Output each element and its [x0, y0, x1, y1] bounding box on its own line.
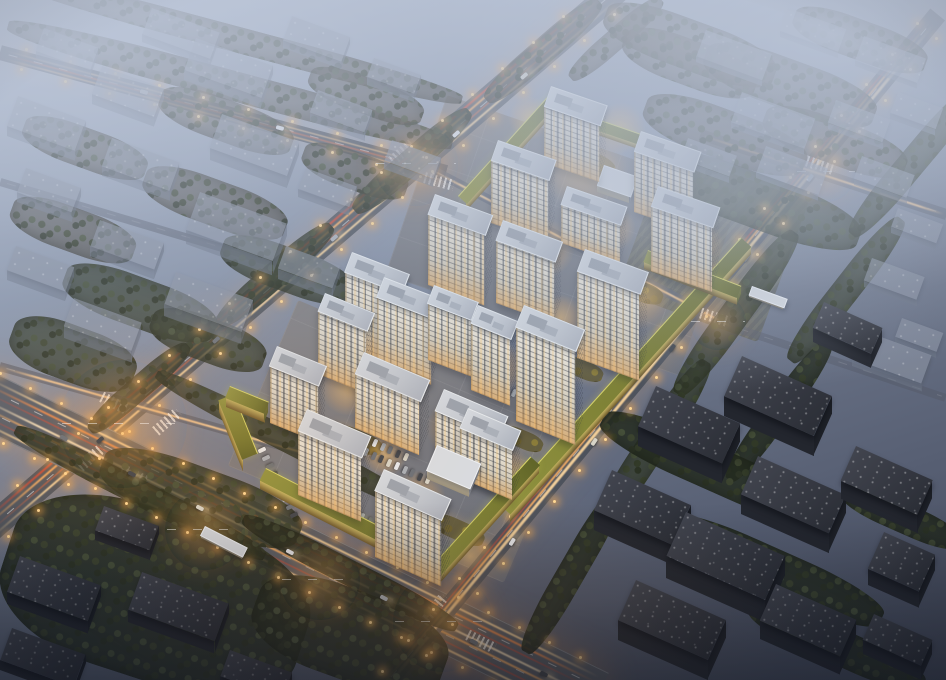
streetlight-glow: [562, 15, 565, 18]
tree-cluster: [241, 559, 460, 680]
vehicle: [742, 254, 750, 262]
bg-roof: [17, 168, 80, 212]
courtyard-light-glow: [388, 298, 448, 358]
dark-roof: [813, 302, 883, 354]
tree-cluster: [92, 434, 310, 562]
tower-facade: [428, 213, 484, 306]
courtyard-light-glow: [470, 340, 526, 396]
streetlight-glow: [462, 144, 465, 147]
streetlight-glow: [308, 591, 311, 594]
tree-cluster: [757, 96, 913, 189]
slab-facade: [375, 489, 441, 586]
courtyard-light-glow: [508, 96, 552, 140]
tree-cluster: [151, 363, 429, 521]
streetlight-glow: [228, 302, 231, 305]
bg-facade: [142, 34, 210, 67]
bg-facade: [310, 113, 365, 141]
dark-side-face: [840, 620, 856, 673]
parked-car: [277, 487, 286, 494]
streetlight-glow: [108, 92, 111, 95]
podium-roof: [225, 386, 269, 414]
dark-facade: [863, 640, 921, 680]
streetlight-glow: [198, 328, 201, 331]
tree-cluster: [215, 225, 362, 314]
tree-cluster: [478, 0, 608, 110]
dark-facade: [841, 481, 918, 533]
tower-facade: [516, 325, 575, 445]
streetlight-glow: [884, 99, 887, 102]
parked-car: [373, 533, 380, 542]
tower-side-face: [470, 302, 476, 372]
parked-car: [510, 389, 517, 398]
parked-car: [405, 534, 412, 543]
dark-roof: [220, 650, 292, 680]
tower-facade: [345, 271, 401, 368]
low-roof: [200, 526, 248, 558]
road-nw-avenue: [0, 45, 448, 179]
crosswalk: [423, 172, 455, 190]
parked-car: [526, 396, 533, 405]
tower-facade: [377, 296, 431, 385]
vehicle: [212, 336, 220, 344]
streetlight-glow: [242, 127, 245, 130]
tree-cluster: [297, 134, 413, 207]
traffic-light-trail: [0, 376, 599, 678]
tree-cluster: [719, 335, 840, 488]
streetlight-glow: [247, 561, 250, 564]
streetlight-glow: [33, 457, 36, 460]
streetlight-glow: [247, 108, 250, 111]
traffic-light-trail: [4, 54, 441, 173]
dark-facade: [95, 530, 150, 560]
bg-roof: [864, 258, 925, 300]
bg-side-face: [210, 33, 220, 67]
parked-car: [411, 550, 418, 559]
tree-cluster: [137, 156, 294, 251]
bg-roof: [142, 8, 219, 59]
streetlight-glow: [340, 248, 343, 251]
tower-side-face: [575, 329, 583, 438]
streetlight-glow: [155, 516, 158, 519]
road-east-avenue: [365, 8, 946, 680]
streetlight-glow: [909, 68, 912, 71]
tree-cluster: [303, 59, 428, 134]
tower-facade: [428, 302, 471, 376]
tree-cluster: [588, 353, 719, 533]
vehicle: [286, 548, 295, 555]
podium-roof: [218, 394, 258, 460]
bg-side-face: [349, 186, 357, 214]
vehicle: [128, 470, 137, 477]
bg-facade: [92, 94, 154, 127]
crosswalk: [805, 156, 837, 176]
bg-roof: [7, 246, 74, 292]
vehicle: [452, 130, 460, 138]
parked-car: [420, 541, 427, 550]
streetlight-glow: [407, 639, 410, 642]
intersection-glow: [374, 122, 458, 206]
bg-side-face: [131, 323, 141, 362]
tree-cluster: [836, 477, 946, 557]
bg-roof: [367, 58, 421, 94]
traffic-light-trail: [373, 17, 929, 680]
dark-side-face: [871, 328, 882, 366]
streetlight-glow: [807, 191, 810, 194]
streetlight-glow: [158, 404, 161, 407]
tower-roof: [344, 252, 410, 295]
intersection-glow: [690, 294, 746, 350]
bg-facade: [780, 31, 838, 58]
parked-car: [557, 410, 564, 419]
traffic-light-trail: [3, 57, 440, 176]
bg-roof: [64, 298, 142, 351]
intersection-glow: [796, 142, 856, 202]
streetlight-glow: [219, 352, 222, 355]
haze-top-right: [0, 0, 946, 680]
slab-roof: [355, 352, 431, 402]
dark-roof: [95, 506, 158, 550]
low-side-face: [469, 463, 479, 496]
streetlight-glow: [243, 492, 246, 495]
streetlight-glow: [20, 68, 23, 71]
courtyard-light-glow: [390, 470, 446, 526]
dark-side-face: [673, 505, 691, 564]
tower-roof: [495, 220, 563, 263]
bg-roof: [7, 96, 86, 151]
traffic-light-trail: [3, 367, 337, 462]
parked-car: [541, 403, 548, 412]
streetlight-glow: [375, 163, 378, 166]
tree-cluster: [558, 352, 606, 385]
courtyard-light-glow: [608, 266, 672, 330]
parked-car: [548, 418, 555, 427]
parked-car: [371, 439, 378, 448]
parked-car: [379, 442, 386, 451]
traffic-light-trail: [0, 402, 587, 680]
streetlight-glow: [381, 670, 384, 673]
bg-roof: [780, 8, 846, 52]
parked-car: [374, 520, 381, 529]
parked-car: [525, 408, 532, 417]
parked-car: [540, 414, 547, 423]
bg-side-face: [154, 243, 164, 278]
slab-facade: [355, 372, 419, 455]
streetlight-glow: [189, 378, 192, 381]
vehicle: [140, 89, 149, 94]
streetlight-glow: [527, 531, 530, 534]
streetlight-glow: [476, 592, 479, 595]
dark-side-face: [215, 603, 229, 652]
tree-cluster: [554, 140, 618, 181]
streetlight-glow: [369, 621, 372, 624]
bg-side-face: [65, 267, 74, 301]
streetlight-glow: [501, 67, 504, 70]
streetlight-glow: [98, 457, 101, 460]
traffic-light-trail: [0, 0, 606, 528]
bg-facade: [7, 126, 75, 161]
crosswalk: [388, 138, 418, 166]
traffic-light-trail: [5, 49, 442, 168]
bg-facade: [756, 172, 818, 201]
slab-side-face: [420, 379, 429, 451]
parked-car: [572, 336, 581, 344]
dark-roof: [741, 456, 846, 533]
streetlight-glow: [655, 376, 658, 379]
streetlight-glow: [114, 72, 117, 75]
parked-car: [563, 425, 570, 434]
courtyard-light-glow: [484, 446, 532, 494]
streetlight-glow: [319, 224, 322, 227]
tree-cluster: [5, 0, 466, 112]
road-main-boulevard: [0, 367, 608, 680]
streetlight-glow: [457, 596, 460, 599]
streetlight-glow: [289, 250, 292, 253]
tree-cluster: [237, 507, 463, 639]
bg-facade: [680, 159, 729, 183]
streetlight-glow: [553, 500, 556, 503]
streetlight-glow: [202, 96, 205, 99]
tree-cluster: [564, 0, 669, 87]
tower-facade: [544, 105, 599, 182]
dark-roof: [724, 356, 831, 436]
intersection-glow: [165, 490, 245, 570]
bg-roof: [186, 192, 286, 261]
vehicle: [380, 594, 389, 601]
dark-roof: [863, 614, 933, 666]
vehicle: [96, 436, 104, 444]
streetlight-glow: [371, 222, 374, 225]
tower-side-face: [485, 215, 492, 300]
tree-cluster: [593, 399, 830, 537]
streetlight-glow: [916, 22, 919, 25]
bg-side-face: [341, 37, 350, 69]
streetlight-glow: [532, 41, 535, 44]
streetlight-glow: [350, 198, 353, 201]
streetlight-glow: [687, 299, 690, 302]
parked-car: [396, 543, 403, 552]
streetlight-glow: [425, 654, 428, 657]
bg-roof: [184, 38, 273, 98]
streetlight-glow: [441, 119, 444, 122]
streetlight-glow: [168, 354, 171, 357]
traffic-light-trail: [0, 414, 581, 680]
tower-side-face: [620, 206, 626, 260]
streetlight-glow: [585, 423, 588, 426]
low-roof: [426, 445, 481, 490]
bg-facade: [36, 51, 91, 79]
bg-side-face: [241, 300, 253, 343]
streetlight-glow: [310, 274, 313, 277]
streetlight-glow: [451, 623, 454, 626]
traffic-light-trail: [379, 22, 935, 680]
streetlight-glow: [492, 117, 495, 120]
parked-car: [393, 462, 400, 471]
traffic-light-trail: [0, 382, 596, 680]
streetlight-glow: [0, 372, 2, 375]
courtyard-light-glow: [676, 220, 724, 268]
slab-side-face: [361, 436, 370, 517]
tower-facade: [491, 159, 548, 243]
parked-car: [404, 546, 411, 555]
low-side-face: [630, 176, 637, 202]
parked-car: [333, 422, 340, 431]
courtyard-light-glow: [278, 386, 322, 430]
streetlight-glow: [197, 115, 200, 118]
streetlight-glow: [613, 13, 616, 16]
bg-roof: [283, 16, 350, 62]
tower-roof: [634, 131, 702, 173]
parked-car: [355, 445, 362, 454]
vehicle: [590, 437, 597, 446]
haze-top-left: [0, 0, 946, 680]
streetlight-glow: [840, 114, 843, 117]
slab-facade: [298, 429, 361, 522]
bg-roof: [891, 208, 943, 243]
streetlight-glow: [69, 60, 72, 63]
bg-roof: [696, 30, 771, 80]
parked-car: [356, 432, 363, 441]
streetlight-glow: [579, 656, 582, 659]
vehicle: [668, 343, 676, 352]
courtyard-light-glow: [304, 422, 356, 474]
bg-side-face: [287, 142, 299, 187]
bg-roof: [828, 100, 891, 142]
traffic-light-trail: [0, 0, 617, 541]
podium-facade: [466, 99, 560, 211]
streetlight-glow: [128, 430, 131, 433]
streetlight-glow: [858, 130, 861, 133]
dark-facade: [7, 592, 88, 633]
streetlight-glow: [277, 576, 280, 579]
streetlight-glow: [611, 392, 614, 395]
bg-roof: [384, 140, 440, 178]
parked-car: [397, 530, 404, 539]
slab-facade: [270, 365, 318, 442]
slab-facade: [435, 409, 498, 494]
streetlight-glow: [64, 472, 67, 475]
lights-and-vehicles-layer: [0, 0, 946, 680]
bg-roof: [895, 318, 943, 352]
dark-side-face: [722, 423, 740, 482]
low-facade: [427, 469, 469, 497]
streetlight-glow: [712, 269, 715, 272]
bg-side-face: [90, 48, 98, 78]
tower-facade: [496, 239, 554, 324]
traffic-light-trail: [0, 395, 590, 680]
parked-car: [362, 448, 369, 457]
dark-facade: [741, 494, 829, 553]
streetlight-glow: [259, 276, 262, 279]
parked-car: [413, 537, 420, 546]
streetlight-glow: [60, 402, 63, 405]
road-ne-arterial: [0, 0, 627, 550]
road-far-street-ne: [698, 129, 946, 219]
tree-cluster: [9, 418, 270, 568]
tree-cluster: [350, 375, 393, 405]
parked-car: [579, 432, 586, 441]
tree-cluster: [787, 0, 932, 83]
traffic-light-trail: [0, 408, 583, 680]
tree-cluster: [2, 305, 143, 402]
bg-facade: [367, 77, 414, 102]
streetlight-glow: [25, 48, 28, 51]
bg-facade: [731, 122, 804, 155]
parked-car: [289, 511, 298, 518]
parked-car: [366, 516, 373, 525]
dark-roof: [594, 470, 690, 545]
parked-car: [590, 316, 599, 324]
streetlight-glow: [338, 606, 341, 609]
dark-side-face: [917, 480, 932, 531]
parked-car: [442, 564, 449, 573]
vehicle: [540, 670, 549, 677]
parked-car: [285, 503, 294, 510]
podium-facade: [439, 465, 539, 584]
courtyard-light-glow: [426, 396, 490, 460]
dark-side-face: [765, 556, 785, 620]
streetlight-glow: [331, 151, 334, 154]
parked-car: [556, 421, 563, 430]
parked-car: [370, 451, 377, 460]
streetlight-glow: [151, 447, 154, 450]
streetlight-glow: [94, 487, 97, 490]
streetlight-glow: [380, 171, 383, 174]
bg-roof: [298, 168, 356, 207]
bg-side-face: [154, 89, 164, 126]
dark-roof: [666, 512, 784, 600]
courtyard-light-glow: [588, 204, 636, 252]
dark-facade: [760, 621, 840, 675]
streetlight-glow: [336, 132, 339, 135]
dark-side-face: [150, 526, 159, 560]
tower-roof: [427, 194, 493, 236]
intersection-glow: [280, 540, 360, 620]
streetlight-glow: [534, 485, 537, 488]
courtyard-light-glow: [515, 218, 575, 278]
tower-side-face: [554, 241, 561, 319]
bg-roof: [90, 220, 163, 270]
streetlight-glow: [483, 546, 486, 549]
dark-side-face: [708, 620, 726, 679]
dark-facade: [666, 556, 765, 622]
tree-cluster: [4, 11, 456, 159]
streetlight-glow: [471, 93, 474, 96]
podium-side-face: [264, 402, 268, 422]
parked-car: [571, 428, 578, 437]
complex-ground-plate: [385, 95, 740, 376]
podium-side-face: [737, 286, 741, 305]
streetlight-glow: [548, 641, 551, 644]
dark-facade: [868, 569, 919, 608]
streetlight-glow: [731, 284, 734, 287]
dark-facade: [220, 676, 282, 680]
tree-cluster: [513, 481, 632, 660]
tree-cluster: [841, 80, 946, 244]
road-side-street-west: [0, 362, 341, 467]
streetlight-glow: [401, 196, 404, 199]
parked-car: [549, 406, 556, 415]
bg-facade: [828, 123, 883, 149]
bg-roof: [852, 330, 932, 384]
streetlight-glow: [935, 37, 938, 40]
bg-facade: [102, 166, 170, 201]
slab-roof: [269, 346, 327, 387]
slab-side-face: [366, 312, 373, 388]
streetlight-glow: [274, 506, 277, 509]
warm-road-glow-overlay: [0, 0, 946, 680]
streetlight-glow: [410, 145, 413, 148]
dark-side-face: [921, 640, 932, 678]
